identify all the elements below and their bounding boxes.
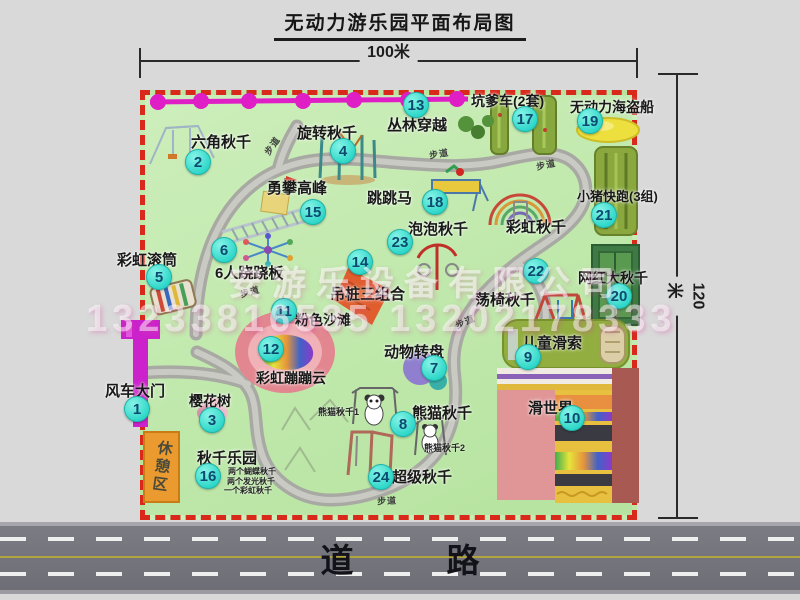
rest-area: 休憩区 [143,431,180,503]
attraction-label-24: 超级秋千 [392,466,452,487]
marker-circle-21: 21 [591,202,617,228]
marker-circle-2: 2 [185,149,211,175]
watermark-phone: 13233816535 13202178333 [86,298,677,341]
attraction-label-12: 彩虹蹦蹦云 [256,368,326,388]
road: 道 路 [0,522,800,594]
marker-circle-4: 4 [330,138,356,164]
marker-circle-15: 15 [300,199,326,225]
marker-circle-19: 19 [577,108,603,134]
page-title: 无动力游乐园平面布局图 [274,8,525,41]
title-bar: 无动力游乐园平面布局图 [0,8,800,41]
attraction-label-18: 跳跳马 [367,187,412,208]
marker-circle-24: 24 [368,464,394,490]
attraction-label-15: 勇攀高峰 [267,177,327,198]
road-label: 道 路 [0,526,800,590]
sub-label-4: 熊猫秋千2 [424,441,465,454]
marker-circle-3: 3 [199,407,225,433]
marker-circle-10: 10 [559,405,585,431]
marker-circle-17: 17 [512,106,538,132]
attraction-label-rainbow-swing: 彩虹秋千 [506,216,566,237]
marker-circle-5: 5 [146,264,172,290]
sub-label-3: 熊猫秋千1 [318,405,359,418]
marker-circle-9: 9 [515,344,541,370]
marker-circle-23: 23 [387,229,413,255]
dimension-width-label: 100米 [359,38,418,62]
marker-circle-18: 18 [422,189,448,215]
marker-circle-16: 16 [195,463,221,489]
marker-circle-8: 8 [390,411,416,437]
dimension-height-line: 120米 [676,74,678,518]
walkway-label-4: 步道 [377,493,398,507]
attraction-label-8: 熊猫秋千 [412,402,472,423]
marker-circle-1: 1 [124,396,150,422]
attraction-label-23: 泡泡秋千 [408,218,468,239]
attraction-label-21: 小猪快跑(3组) [577,186,658,205]
marker-circle-13: 13 [403,92,429,118]
rest-area-label: 休憩区 [147,439,175,495]
marker-circle-7: 7 [421,355,447,381]
sub-label-2: 一个彩虹秋千 [224,485,272,496]
dimension-width-line: 100米 [140,60,637,62]
